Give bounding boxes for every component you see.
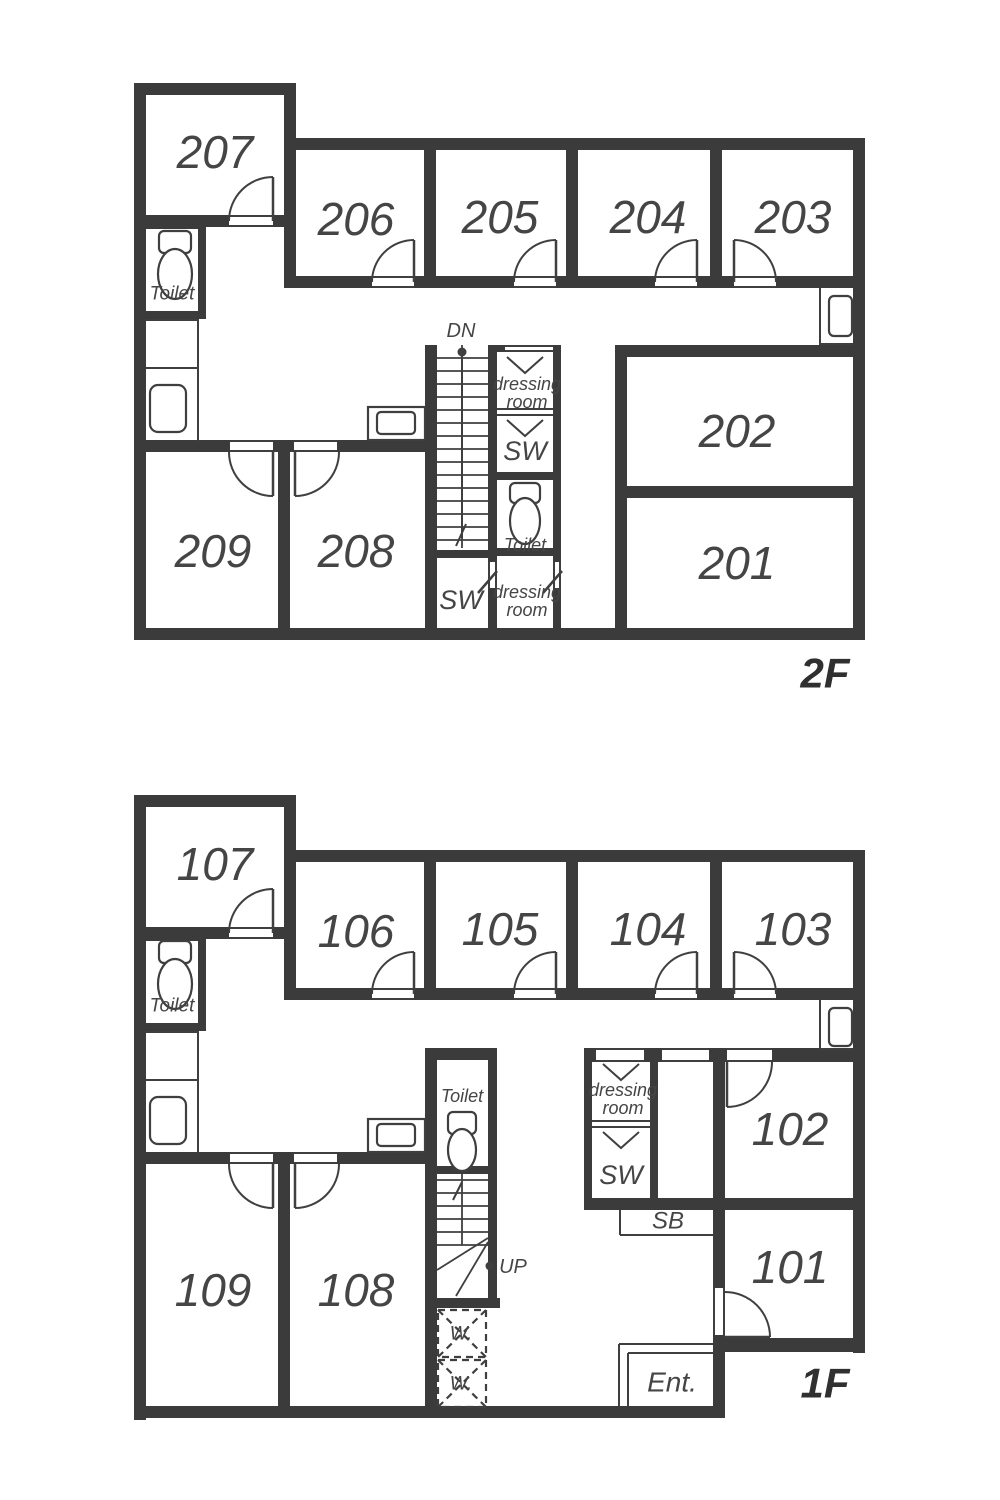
room-104-label: 104 [610,903,687,955]
entrance-label: Ent. [647,1367,697,1398]
floor-2f: 207 206 205 204 203 202 201 209 208 Toil… [134,83,865,697]
basin-icon [377,1124,415,1146]
folding-door-icon [507,357,543,373]
room-106-label: 106 [318,905,395,957]
dressing-room-upper-2f [507,357,543,373]
dressing-room-lower-label2-2f: room [506,600,547,620]
floor-2f-label: 2F [799,650,850,697]
floor-plan-page: 207 206 205 204 203 202 201 209 208 Toil… [0,0,1000,1500]
shower-lower-label-2f: SW [439,585,485,615]
shower-label-1f: SW [599,1160,645,1190]
room-108-label: 108 [318,1264,395,1316]
shower-room-upper-2f [507,420,543,436]
toilet-center-1f [448,1112,476,1171]
washer-label-1: W. [450,1324,473,1345]
dressing-room-lower-label1-2f: dressing [493,582,561,602]
folding-door-icon [603,1132,639,1148]
room-areas-1f [146,807,853,1406]
washbasin-corridor-1f [368,1119,425,1152]
stair-direction-2f: DN [447,320,476,342]
stair-arrow-1f [453,1182,462,1200]
stair-direction-1f: UP [499,1256,527,1278]
dressing-room-label1-1f: dressing [589,1080,657,1100]
stair-start-dot-1f [486,1262,495,1271]
dressing-room-upper-label2-2f: room [506,392,547,412]
washer-label-2: W. [450,1374,473,1395]
kitchen-counter-2f [146,320,198,442]
room-203-label: 203 [754,191,832,243]
floor-1f-label: 1F [800,1360,850,1407]
room-209-label: 209 [174,525,252,577]
room-102-label: 102 [752,1103,829,1155]
toilet-center-label-2f: Toilet [504,535,547,555]
basin-icon [377,412,415,434]
room-207-label: 207 [176,126,255,178]
washbasin-right-1f [820,1000,853,1050]
basin-icon [829,1008,852,1046]
shoe-box-label: SB [652,1208,684,1235]
toilet-left-label-2f: Toilet [150,284,195,305]
stairs-2f [437,345,488,548]
shower-upper-label-2f: SW [503,436,549,466]
floor-plan-drawing: 207 206 205 204 203 202 201 209 208 Toil… [0,0,1000,1500]
toilet-center-label-1f: Toilet [441,1086,484,1106]
dressing-room-1f [603,1064,639,1080]
washbasin-corridor-2f [368,407,425,440]
room-204-label: 204 [609,191,687,243]
sink-icon [150,385,186,432]
room-105-label: 105 [462,903,539,955]
room-101-label: 101 [752,1241,829,1293]
room-206-label: 206 [317,193,395,245]
room-205-label: 205 [461,191,539,243]
room-109-label: 109 [175,1264,252,1316]
shower-room-1f [603,1132,639,1148]
folding-door-icon [507,420,543,436]
room-103-label: 103 [755,903,832,955]
dressing-room-label2-1f: room [602,1098,643,1118]
stairs-1f [437,1174,495,1296]
toilet-left-label-1f: Toilet [150,996,195,1017]
folding-door-icon [603,1064,639,1080]
dressing-room-upper-label1-2f: dressing [493,374,561,394]
room-208-label: 208 [317,525,395,577]
washbasin-right-2f [820,288,853,345]
floor-1f: 107 106 105 104 103 102 101 109 108 Toil… [134,795,865,1420]
room-201-label: 201 [698,537,776,589]
kitchen-counter-1f [146,1032,198,1154]
room-202-label: 202 [698,405,776,457]
basin-icon [829,296,852,336]
sink-icon [150,1097,186,1144]
room-107-label: 107 [177,838,255,890]
